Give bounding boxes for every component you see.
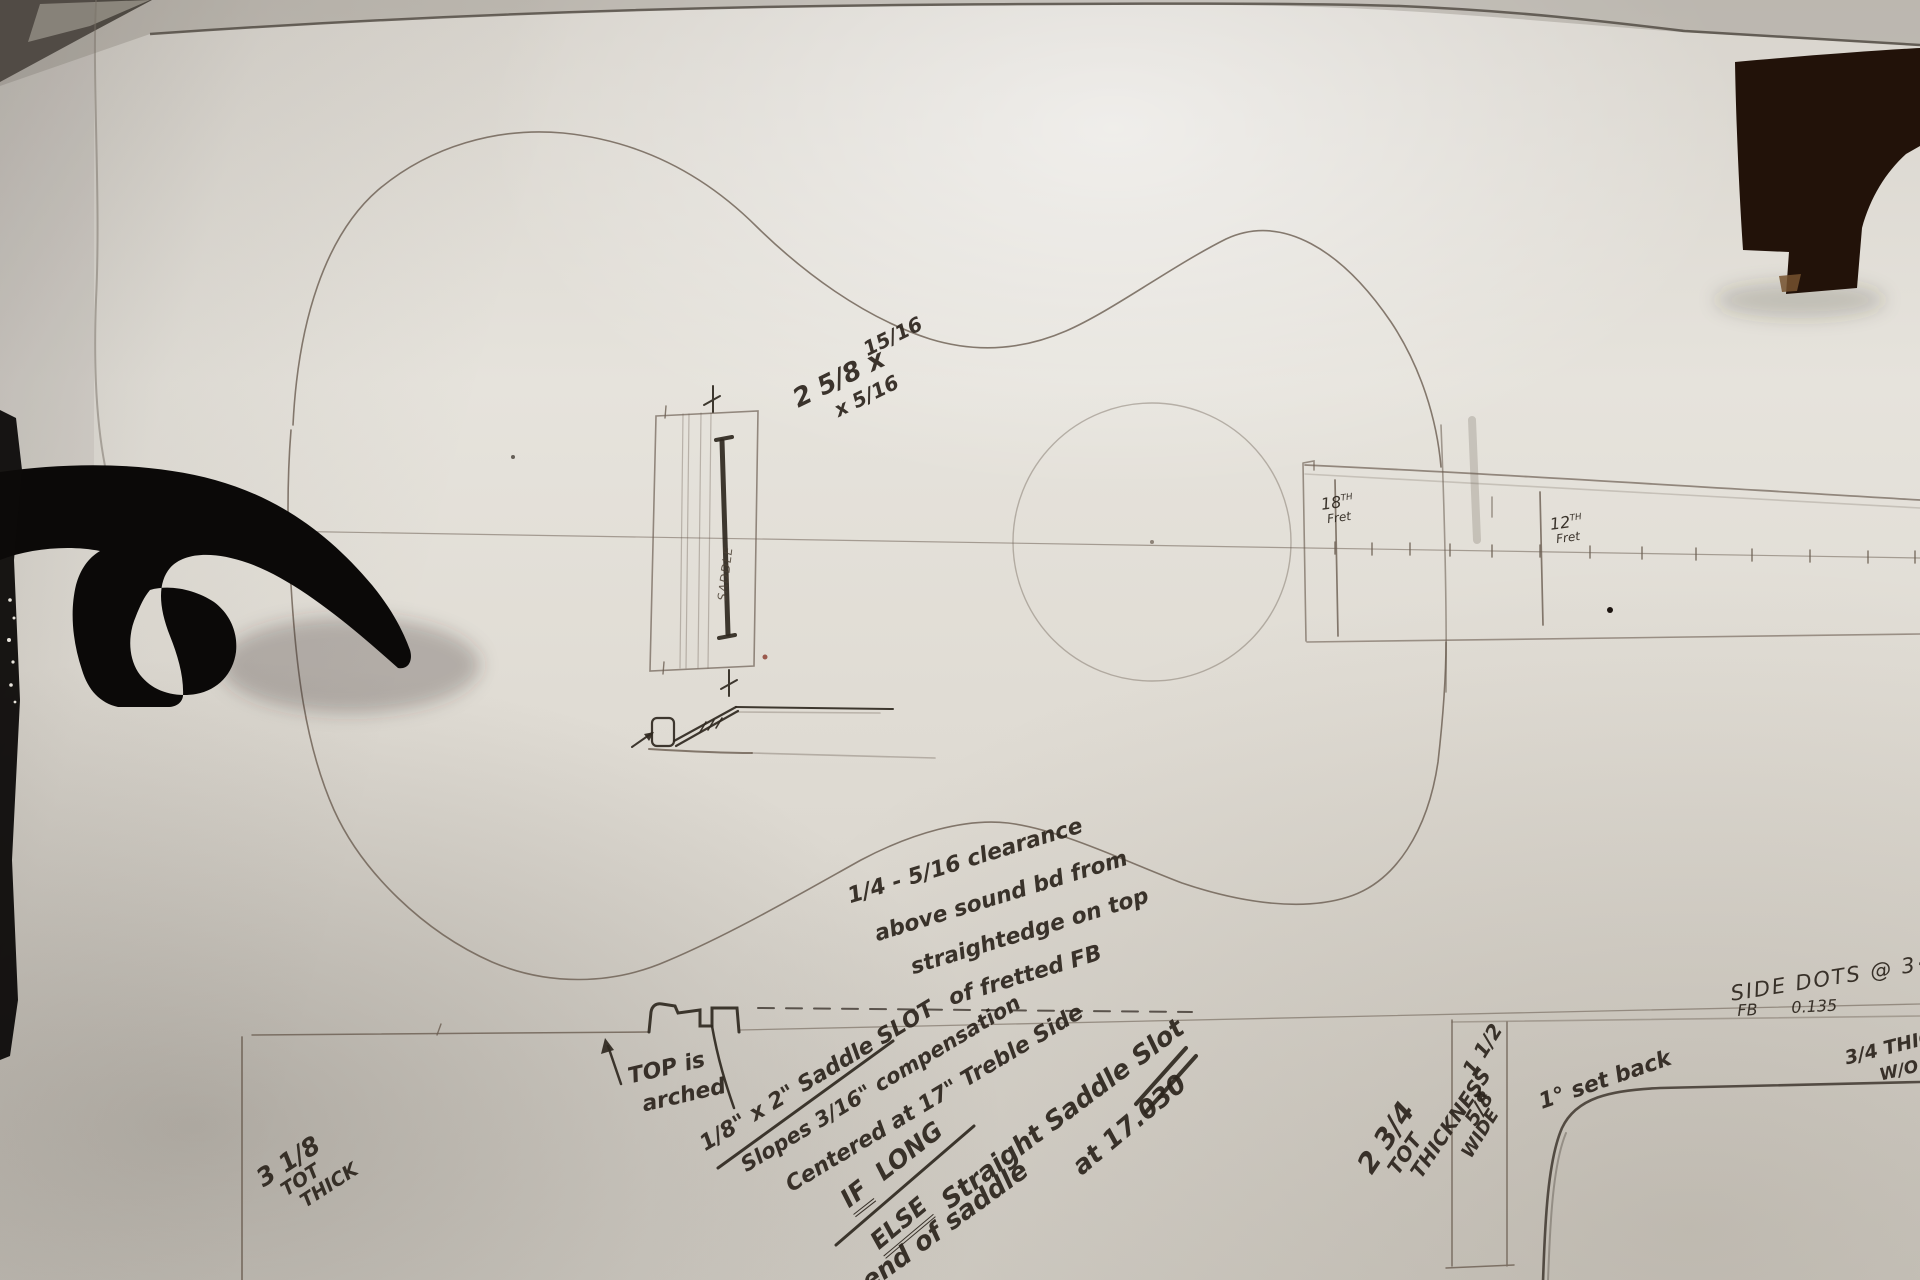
fret-12-line bbox=[1540, 492, 1543, 625]
fb-thickness-value: 0.135 bbox=[1791, 998, 1838, 1017]
arched-arrow bbox=[608, 1046, 621, 1084]
centerline bbox=[272, 531, 1920, 558]
fret-18-label: 18TH Fret bbox=[1320, 492, 1356, 526]
rounded-template-outline bbox=[1543, 1082, 1920, 1280]
fret-18-ordinal: TH bbox=[1340, 492, 1353, 504]
fretboard-end-line bbox=[1303, 461, 1314, 641]
fretboard-bottom-edge bbox=[1307, 634, 1920, 642]
wood-corbel-silhouette bbox=[1735, 48, 1920, 294]
fretboard-top-edge bbox=[1305, 465, 1920, 500]
bridge-plan-rect bbox=[650, 411, 758, 671]
centerline-symbol-bottom bbox=[721, 670, 737, 696]
fret-12-label: 12TH Fret bbox=[1549, 512, 1585, 546]
bridge-cross-section bbox=[649, 1004, 739, 1032]
guitar-plan-photo: 2 5/8 x 15/16 x 5/16 SADDLE 18TH Fret 12… bbox=[0, 0, 1920, 1280]
fret-tick-marks bbox=[1335, 542, 1915, 563]
body-neck-joint-line bbox=[1441, 425, 1446, 692]
guitar-body-outline-top bbox=[293, 132, 1441, 467]
sound-hole-center-dot bbox=[1150, 540, 1154, 544]
top-surface-line-left bbox=[252, 1032, 648, 1035]
fret-12-ordinal: TH bbox=[1569, 512, 1582, 524]
centerline-symbol-top bbox=[704, 386, 720, 412]
paper-edges bbox=[0, 0, 1920, 470]
saddle-bar bbox=[722, 441, 728, 634]
fb-label: FB bbox=[1737, 1002, 1758, 1020]
